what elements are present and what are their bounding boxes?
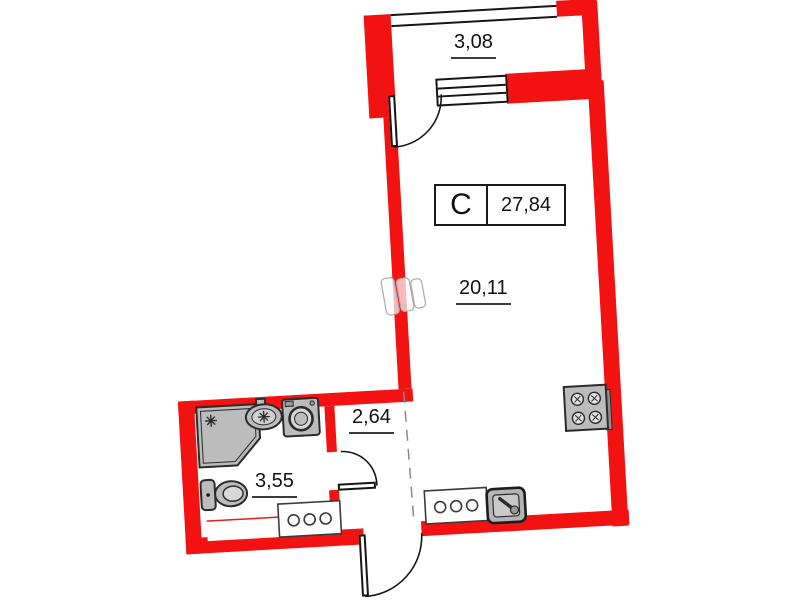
fixtures-layer <box>0 0 800 600</box>
toilet-icon <box>200 478 248 511</box>
bathroom-door-arc <box>341 450 377 488</box>
kitchen-sink-icon <box>486 487 526 523</box>
stove-icon <box>564 384 612 431</box>
washing-machine-icon <box>282 398 320 437</box>
kitchen-counter-icon <box>424 487 488 523</box>
floor-plan <box>0 0 800 600</box>
entrance-door-arc <box>362 533 425 596</box>
balcony-door-arc <box>391 94 444 147</box>
floor-plan-canvas: 3,08 С 27,84 20,11 2,64 3,55 <box>0 0 800 600</box>
zone-divider-dashed-line <box>404 392 414 523</box>
radiator-icon <box>381 272 427 315</box>
washbasin-icon <box>245 398 283 430</box>
